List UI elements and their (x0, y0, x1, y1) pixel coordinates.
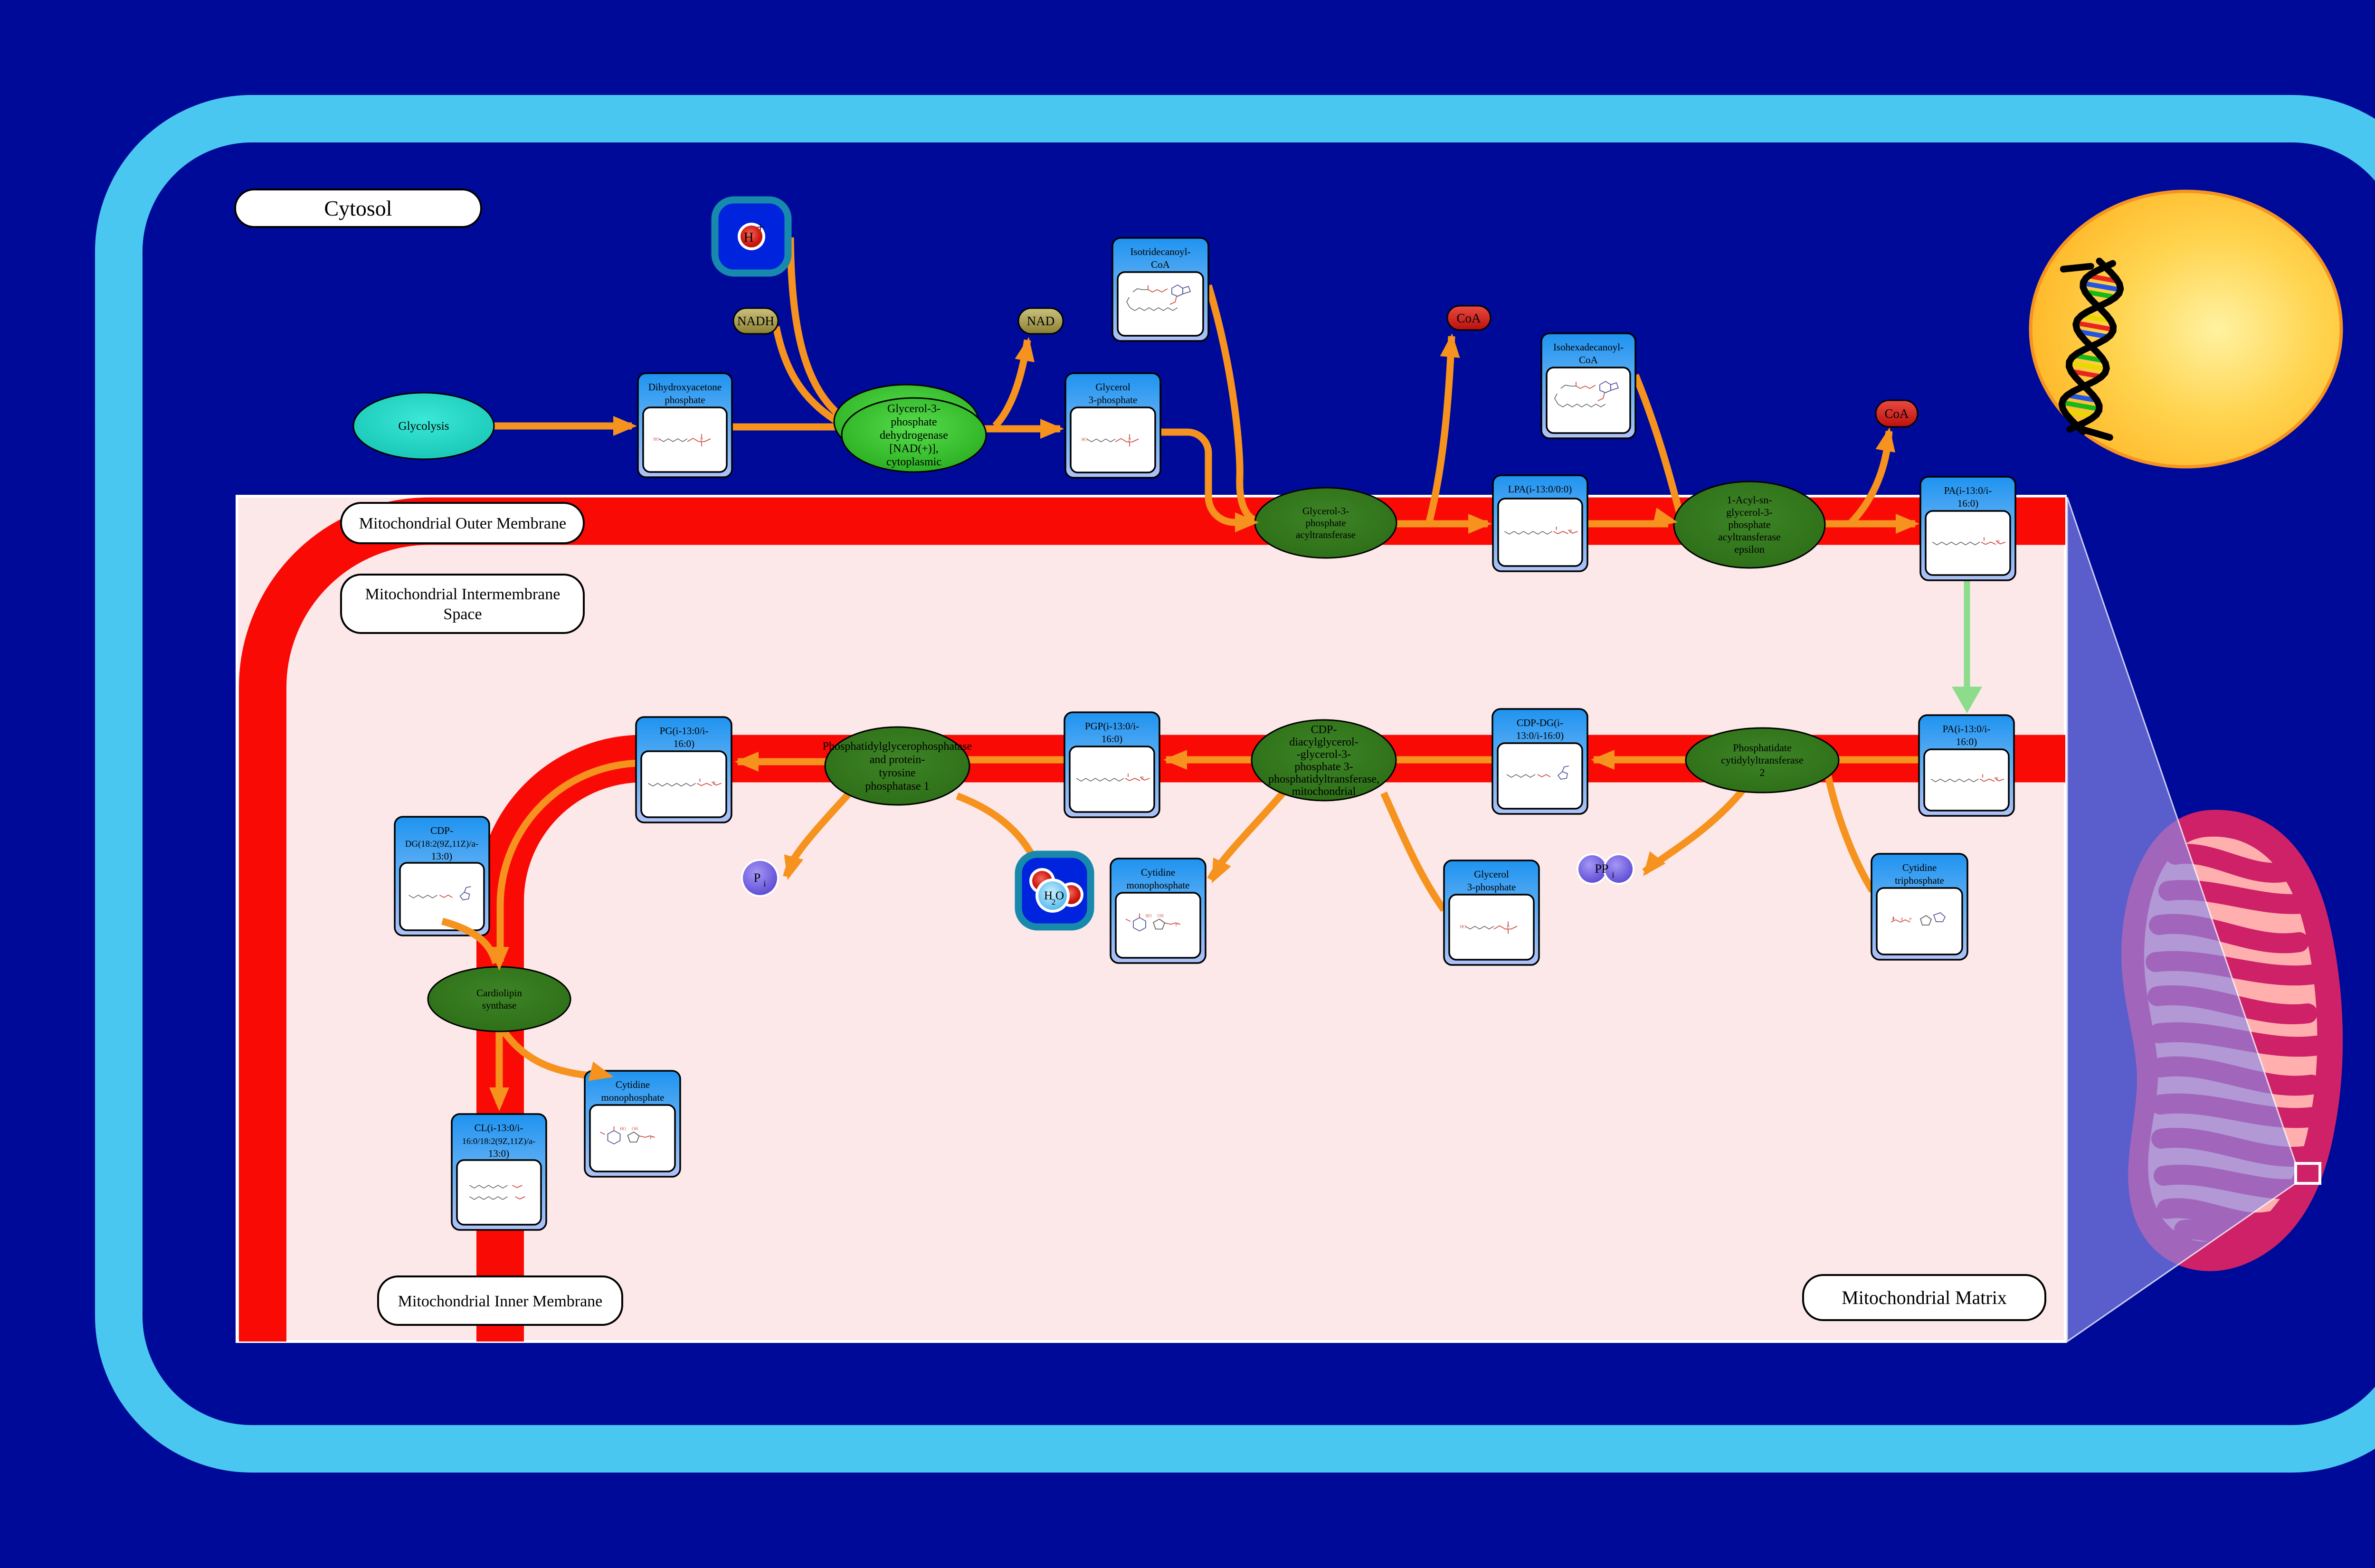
svg-text:Cytidine: Cytidine (1141, 867, 1175, 878)
svg-text:PA(i-13:0/i-: PA(i-13:0/i- (1943, 723, 1991, 735)
svg-text:PA(i-13:0/i-: PA(i-13:0/i- (1944, 485, 1992, 496)
svg-text:diacylglycerol-: diacylglycerol- (1289, 736, 1358, 748)
svg-text:HO: HO (1146, 914, 1152, 918)
svg-text:phosphatidyltransferase,: phosphatidyltransferase, (1268, 773, 1379, 785)
svg-text:tyrosine: tyrosine (879, 767, 915, 779)
svg-text:phosphatase 1: phosphatase 1 (865, 780, 929, 793)
svg-text:P: P (1900, 917, 1903, 922)
svg-text:16:0): 16:0) (674, 738, 694, 749)
svg-text:phosphate: phosphate (891, 416, 937, 428)
svg-text:Dihydroxyacetone: Dihydroxyacetone (648, 381, 722, 393)
svg-text:monophosphate: monophosphate (601, 1092, 665, 1103)
svg-text:glycerol-3-: glycerol-3- (1726, 506, 1773, 518)
svg-text:and protein-: and protein- (870, 754, 925, 766)
svg-text:Phosphatidate: Phosphatidate (1733, 742, 1791, 754)
svg-text:2: 2 (1760, 766, 1765, 778)
svg-text:epsilon: epsilon (1734, 543, 1765, 555)
svg-text:Isotridecanoyl-: Isotridecanoyl- (1130, 246, 1190, 257)
svg-text:CoA: CoA (1151, 259, 1170, 270)
svg-text:3-phosphate: 3-phosphate (1089, 394, 1138, 406)
svg-text:phosphate 3-: phosphate 3- (1294, 761, 1353, 773)
svg-text:P: P (650, 1135, 653, 1141)
svg-text:P: P (1175, 923, 1178, 928)
svg-text:LPA(i-13:0/0:0): LPA(i-13:0/0:0) (1508, 483, 1572, 495)
svg-text:Mitochondrial Matrix: Mitochondrial Matrix (1842, 1287, 2007, 1308)
svg-text:Mitochondrial Outer Membrane: Mitochondrial Outer Membrane (359, 515, 566, 532)
svg-text:3-phosphate: 3-phosphate (1467, 881, 1516, 893)
svg-text:cytidylyltransferase: cytidylyltransferase (1721, 754, 1804, 766)
svg-text:P: P (1995, 777, 1998, 782)
svg-text:16:0/18:2(9Z,11Z)/a-: 16:0/18:2(9Z,11Z)/a- (462, 1136, 535, 1146)
svg-text:16:0): 16:0) (1102, 733, 1122, 745)
svg-text:Cytidine: Cytidine (1902, 862, 1937, 873)
svg-text:NADH: NADH (737, 314, 774, 328)
svg-text:P: P (1909, 917, 1911, 922)
svg-text:Cardiolipin: Cardiolipin (476, 987, 522, 999)
svg-text:HO: HO (654, 437, 660, 442)
svg-text:CoA: CoA (1884, 406, 1909, 421)
svg-text:H: H (744, 230, 754, 245)
svg-text:PGP(i-13:0/i-: PGP(i-13:0/i- (1085, 720, 1139, 732)
svg-text:P: P (1997, 540, 2000, 545)
svg-text:HO: HO (1082, 437, 1088, 442)
svg-text:CoA: CoA (1456, 311, 1481, 325)
svg-text:O: O (1055, 889, 1064, 902)
svg-text:Cytidine: Cytidine (616, 1079, 650, 1090)
svg-text:1-Acyl-sn-: 1-Acyl-sn- (1727, 494, 1772, 506)
svg-text:CDP-DG(i-: CDP-DG(i- (1517, 717, 1563, 728)
svg-text:P: P (1569, 529, 1572, 534)
svg-text:triphosphate: triphosphate (1895, 875, 1944, 886)
svg-text:Glycerol-3-: Glycerol-3- (887, 403, 940, 415)
svg-text:Glycolysis: Glycolysis (399, 420, 449, 433)
svg-text:DG(18:2(9Z,11Z)/a-: DG(18:2(9Z,11Z)/a- (405, 839, 478, 849)
svg-text:acyltransferase: acyltransferase (1718, 531, 1781, 543)
svg-text:Mitochondrial Intermembrane: Mitochondrial Intermembrane (365, 586, 560, 603)
svg-text:i: i (1612, 870, 1614, 879)
svg-text:Isohexadecanoyl-: Isohexadecanoyl- (1553, 341, 1624, 353)
svg-text:+: + (757, 220, 764, 235)
svg-text:synthase: synthase (482, 1000, 516, 1011)
svg-text:cytoplasmic: cytoplasmic (886, 456, 941, 468)
svg-text:16:0): 16:0) (1957, 498, 1978, 509)
svg-text:Glycerol: Glycerol (1474, 869, 1509, 880)
svg-text:phosphate: phosphate (665, 394, 705, 406)
svg-text:phosphate: phosphate (1728, 519, 1770, 530)
svg-text:Space: Space (443, 605, 482, 623)
svg-text:mitochondrial: mitochondrial (1292, 785, 1356, 798)
svg-text:OH: OH (632, 1126, 638, 1131)
svg-text:PP: PP (1595, 862, 1609, 876)
svg-text:P: P (1128, 438, 1131, 443)
svg-text:[NAD(+)],: [NAD(+)], (889, 443, 939, 455)
svg-text:13:0): 13:0) (488, 1148, 509, 1159)
svg-text:16:0): 16:0) (1956, 736, 1977, 747)
svg-text:-glycerol-3-: -glycerol-3- (1297, 748, 1351, 761)
svg-text:HO: HO (1460, 925, 1466, 929)
svg-text:OH: OH (1158, 914, 1164, 918)
svg-text:CoA: CoA (1579, 354, 1598, 366)
svg-text:NAD: NAD (1027, 314, 1055, 328)
svg-text:dehydrogenase: dehydrogenase (880, 429, 948, 442)
svg-text:Phosphatidylglycerophosphatase: Phosphatidylglycerophosphatase (823, 740, 972, 753)
svg-text:P: P (1507, 925, 1510, 930)
svg-text:P: P (700, 437, 703, 443)
svg-text:2: 2 (1052, 897, 1056, 907)
svg-text:P: P (1141, 776, 1144, 781)
svg-text:13:0/i-16:0): 13:0/i-16:0) (1516, 730, 1564, 741)
svg-text:phosphate: phosphate (1305, 517, 1346, 529)
svg-text:Cytosol: Cytosol (324, 196, 392, 220)
svg-text:P: P (713, 781, 716, 786)
svg-text:i: i (763, 879, 766, 888)
svg-text:acyltransferase: acyltransferase (1296, 529, 1356, 540)
svg-text:Mitochondrial Inner Membrane: Mitochondrial Inner Membrane (398, 1293, 603, 1310)
svg-text:Glycerol: Glycerol (1095, 381, 1130, 393)
svg-text:PG(i-13:0/i-: PG(i-13:0/i- (660, 725, 709, 737)
svg-text:CL(i-13:0/i-: CL(i-13:0/i- (475, 1122, 523, 1133)
svg-text:13:0): 13:0) (431, 850, 452, 862)
svg-text:HO: HO (620, 1126, 626, 1131)
svg-text:P: P (754, 871, 760, 885)
svg-text:P: P (1892, 917, 1894, 922)
svg-text:CDP-: CDP- (1311, 724, 1337, 736)
svg-text:Glycerol-3-: Glycerol-3- (1302, 505, 1349, 517)
svg-text:CDP-: CDP- (430, 825, 453, 836)
svg-text:monophosphate: monophosphate (1127, 879, 1190, 891)
